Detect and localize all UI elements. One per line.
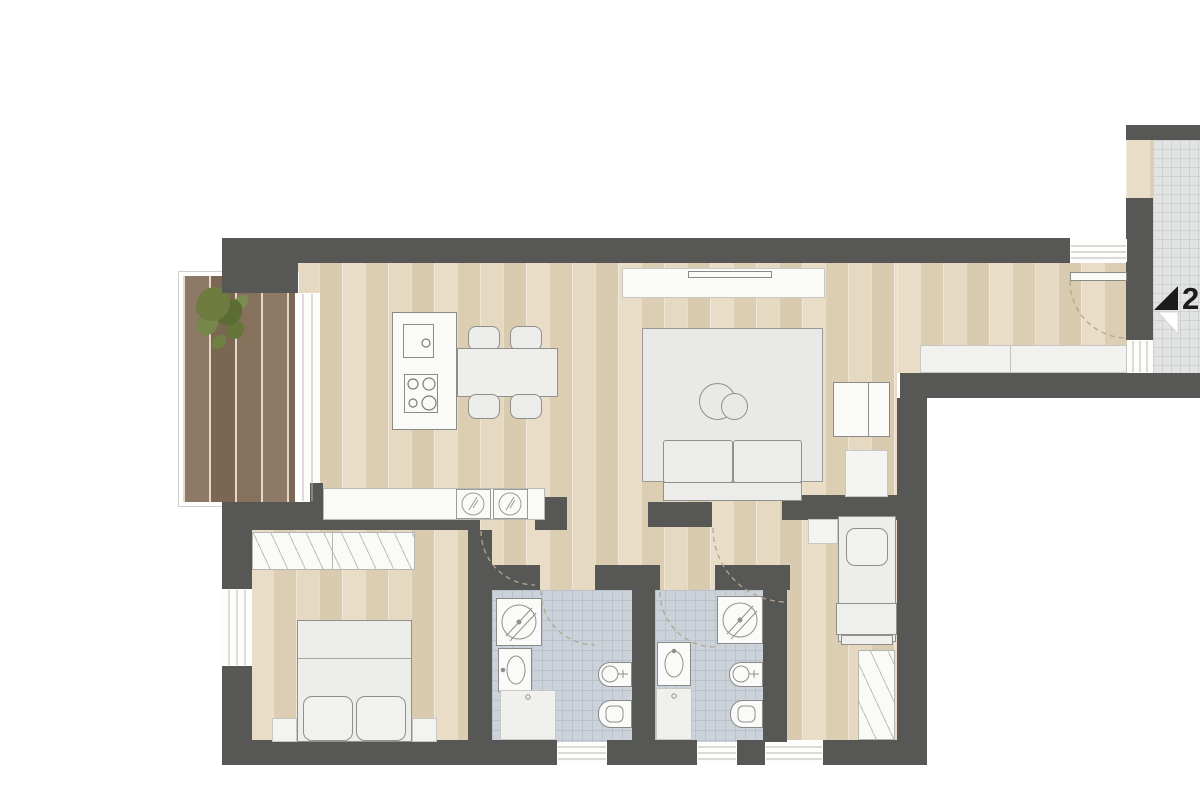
counter-sink-right [493, 489, 528, 519]
side-cabinet [833, 382, 890, 437]
entry-sideboard-divider [1010, 346, 1011, 372]
toilet-icon [598, 700, 632, 728]
wardrobe-bedroom1 [252, 532, 415, 570]
nightstand [272, 718, 297, 742]
coffee-table-small [721, 393, 748, 420]
right-outer-wall [897, 398, 927, 740]
bottom-wall-b [607, 740, 697, 765]
bidet-icon [598, 662, 632, 687]
sofa-seat-right [733, 440, 802, 483]
pillow [356, 696, 406, 741]
ottoman [845, 450, 888, 497]
duvet-fold-line [298, 658, 411, 659]
pillow [303, 696, 353, 741]
cooktop-icon [404, 374, 438, 413]
stairwell-top-wall [1126, 125, 1200, 140]
bathrooms-mid-top-wall [595, 565, 660, 590]
floor-label: 2P [1182, 281, 1200, 317]
shaft-niche [1126, 140, 1153, 198]
bidet-icon [729, 662, 763, 687]
entry-sideboard [920, 345, 1127, 373]
balcony-sliding-window [295, 293, 320, 502]
top-left-corner-wall [222, 238, 298, 293]
bottom-wall-d [823, 740, 927, 765]
bedroom1-left-wall-lower [222, 666, 252, 742]
dining-chair [468, 394, 500, 419]
single-bed-blanket [836, 603, 897, 635]
bottom-wall-c [737, 740, 765, 765]
entry-side-window [1127, 340, 1153, 373]
bathroom1-window [557, 742, 607, 763]
shower-icon [717, 596, 763, 644]
toilet-icon [730, 700, 763, 728]
bedroom1-bathroom1-wall [468, 530, 492, 742]
side-cabinet-divider [868, 383, 869, 436]
washbasin-icon [498, 648, 532, 692]
entrance-opening [1070, 239, 1127, 262]
bathroom2-top-wall [715, 565, 790, 590]
wardrobe1-divider [332, 533, 333, 569]
bedroom2-window [765, 742, 823, 763]
counter-end-wall-stub [310, 483, 323, 524]
nightstand [412, 718, 437, 742]
wardrobe-bedroom2 [858, 650, 895, 740]
entrance-door-leaf [1070, 272, 1127, 281]
single-bed-foot [841, 635, 893, 645]
sofa-back [663, 482, 802, 501]
top-outer-wall [222, 238, 1070, 263]
pillow [846, 528, 888, 566]
bedroom1-window [222, 589, 252, 666]
bottom-wall-a [222, 740, 557, 765]
washbasin-icon [657, 642, 691, 686]
stairwell-left-wall [1126, 198, 1153, 340]
entry-bottom-wall [900, 373, 1200, 398]
counter-sink-left [456, 489, 491, 519]
washing-machine-icon [500, 690, 556, 740]
sink-icon [403, 324, 434, 358]
floor-plan: 2P [0, 0, 1200, 800]
bathroom2-right-wall [763, 590, 787, 742]
dining-table [457, 348, 558, 397]
washing-machine-icon [656, 688, 692, 740]
tv [688, 271, 772, 278]
bathroom2-window [697, 742, 737, 763]
stairwell-landing-floor [1153, 140, 1200, 373]
sofa-seat-left [663, 440, 733, 483]
shower-icon [496, 598, 542, 646]
living-hall-wall [648, 502, 712, 527]
nightstand [808, 519, 838, 544]
bathroom-divider-wall [632, 590, 655, 742]
dining-chair [510, 394, 542, 419]
bathroom1-top-wall [468, 565, 540, 590]
